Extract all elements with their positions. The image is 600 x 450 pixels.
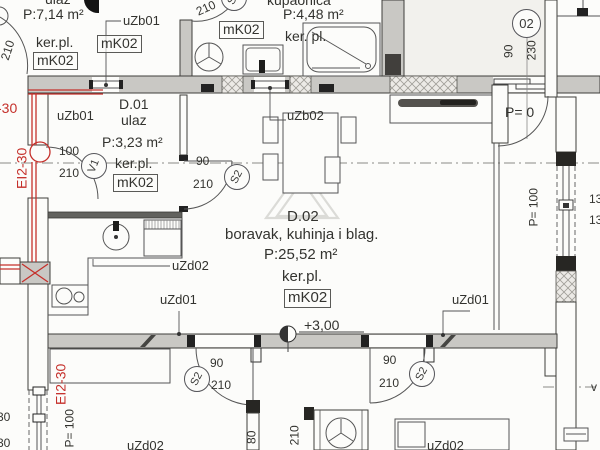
- parapet-left: P= 100: [64, 402, 77, 450]
- door-height-dim: 210: [211, 379, 231, 392]
- chair-icon: [325, 157, 340, 183]
- hob-icon: [52, 285, 88, 307]
- floor-mark: mK02: [219, 21, 264, 39]
- chair-icon: [263, 154, 278, 180]
- sideboard: [390, 95, 548, 146]
- loggia-glazing: [494, 143, 499, 330]
- elevation-value: +3,00: [304, 318, 339, 333]
- edge-cut-dim: 30: [0, 411, 10, 424]
- room-d01-id: D.01: [119, 97, 149, 112]
- room-bath-area: P:4,48 m²: [283, 7, 344, 22]
- opening-label-uzb01: uZb01: [57, 109, 94, 123]
- door-width-dim: 90: [196, 155, 209, 168]
- floor-plan: ulaz P:7,14 m² ker.pl. mK02 210 uZb01 mK…: [0, 0, 600, 450]
- floor-mark: mK02: [97, 35, 142, 53]
- room-d02-area: P:25,52 m²: [264, 247, 337, 263]
- door-tag-text: S2: [189, 370, 206, 388]
- door-width-dim: 100: [59, 145, 79, 158]
- dining-set: [263, 113, 356, 193]
- fire-rating-cut: -30: [0, 101, 17, 116]
- opening-label-uzd01: uZd01: [160, 293, 197, 307]
- opening-label-uzb02: uZb02: [287, 109, 324, 123]
- right-walls: [492, 85, 588, 450]
- room-d02-id: D.02: [287, 209, 319, 225]
- bottom-wall-band: [48, 334, 557, 405]
- room-d01-area: P:3,23 m²: [102, 135, 163, 150]
- edge-cut-dim: 30: [0, 437, 10, 450]
- unit-number: 02: [519, 16, 533, 31]
- opening-label-uzd02: uZd02: [172, 259, 209, 273]
- door-height-dim: 210: [59, 167, 79, 180]
- opening-label-uzb01: uZb01: [123, 14, 160, 28]
- door-height-dim: 210: [193, 178, 213, 191]
- bottom-rooms: [50, 348, 556, 450]
- door-tag-s2: S2: [184, 366, 210, 392]
- badge-width-dim: 90: [503, 39, 516, 63]
- door-tag-text: S2: [414, 365, 431, 383]
- opening-label-uzd02: uZd02: [127, 439, 164, 450]
- door-tag-text: V1: [86, 158, 102, 175]
- door-tag-v1: V1: [81, 153, 107, 179]
- floor-mark: mK02: [33, 52, 78, 70]
- fire-rating-label: EI2-30: [15, 139, 30, 197]
- unit-badge: 02: [512, 9, 541, 38]
- room-d01-floor: ker.pl.: [115, 156, 152, 171]
- edge-cut-text: v: [591, 381, 597, 394]
- dishwasher-icon: [144, 220, 181, 256]
- chair-icon: [341, 117, 356, 143]
- top-wall-band: [28, 76, 600, 93]
- floor-mark: mK02: [113, 174, 158, 192]
- badge-height-dim: 230: [526, 35, 539, 65]
- room-upper-floor: ker.pl.: [36, 35, 73, 50]
- door-tag-text: S2: [226, 0, 243, 7]
- plan-linework: [0, 0, 600, 450]
- door-height-dim: 210: [379, 377, 399, 390]
- edge-cut-dim: 13: [589, 193, 600, 206]
- room-d01-name: ulaz: [121, 113, 147, 128]
- door-tag-text: S2: [229, 168, 246, 186]
- edge-cut-dim: 13: [589, 214, 600, 227]
- room-d02-name: boravak, kuhinja i blag.: [225, 227, 378, 243]
- door-leaf-icon: [84, 0, 99, 13]
- room-upper-area: P:7,14 m²: [23, 7, 84, 22]
- door-tag-s2: S2: [409, 361, 435, 387]
- tap-icon: [113, 221, 119, 231]
- opening-label-uzd02: uZd02: [427, 439, 464, 450]
- door-width-dim: 90: [383, 354, 396, 367]
- shaft-width-dim: 80: [246, 425, 259, 449]
- floor-mark: mK02: [284, 289, 331, 308]
- opening-label-uzd01: uZd01: [452, 293, 489, 307]
- pillow-icon: [398, 422, 425, 447]
- room-bath-floor: ker. pl.: [285, 29, 326, 44]
- door-tag-s2: S2: [224, 164, 250, 190]
- room-d02-floor: ker.pl.: [282, 269, 322, 285]
- parapet-right: P= 100: [528, 181, 541, 233]
- chair-icon: [263, 117, 278, 143]
- door-width-dim: 90: [210, 357, 223, 370]
- parapet-terrace: P= 0: [505, 105, 534, 120]
- shaft-depth-dim: 210: [289, 420, 302, 450]
